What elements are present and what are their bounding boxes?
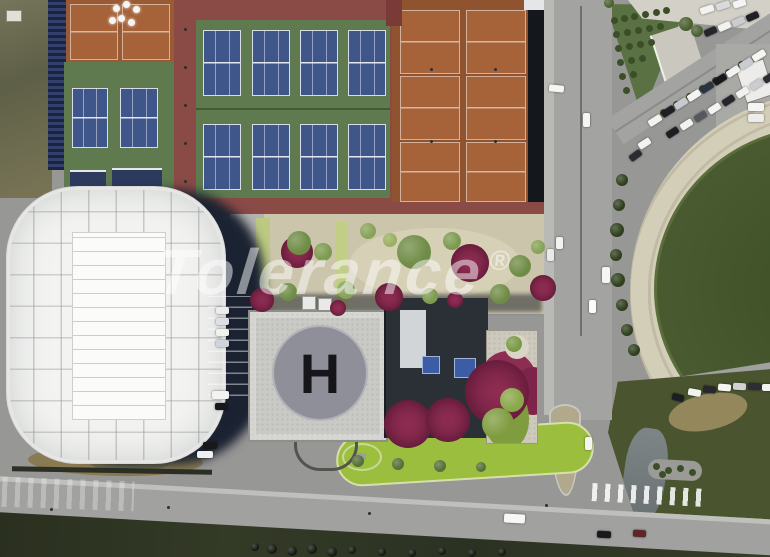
watermark: Tolerance® xyxy=(153,240,515,304)
watermark-text: Tolerance xyxy=(152,236,487,308)
floodlight xyxy=(123,1,130,8)
floodlight xyxy=(128,19,135,26)
floodlight xyxy=(133,6,140,13)
registered-mark: ® xyxy=(488,247,515,275)
aerial-photo: H Tolerance® xyxy=(0,0,770,557)
floodlight xyxy=(118,15,125,22)
floodlight xyxy=(109,17,116,24)
floodlight xyxy=(113,5,120,12)
